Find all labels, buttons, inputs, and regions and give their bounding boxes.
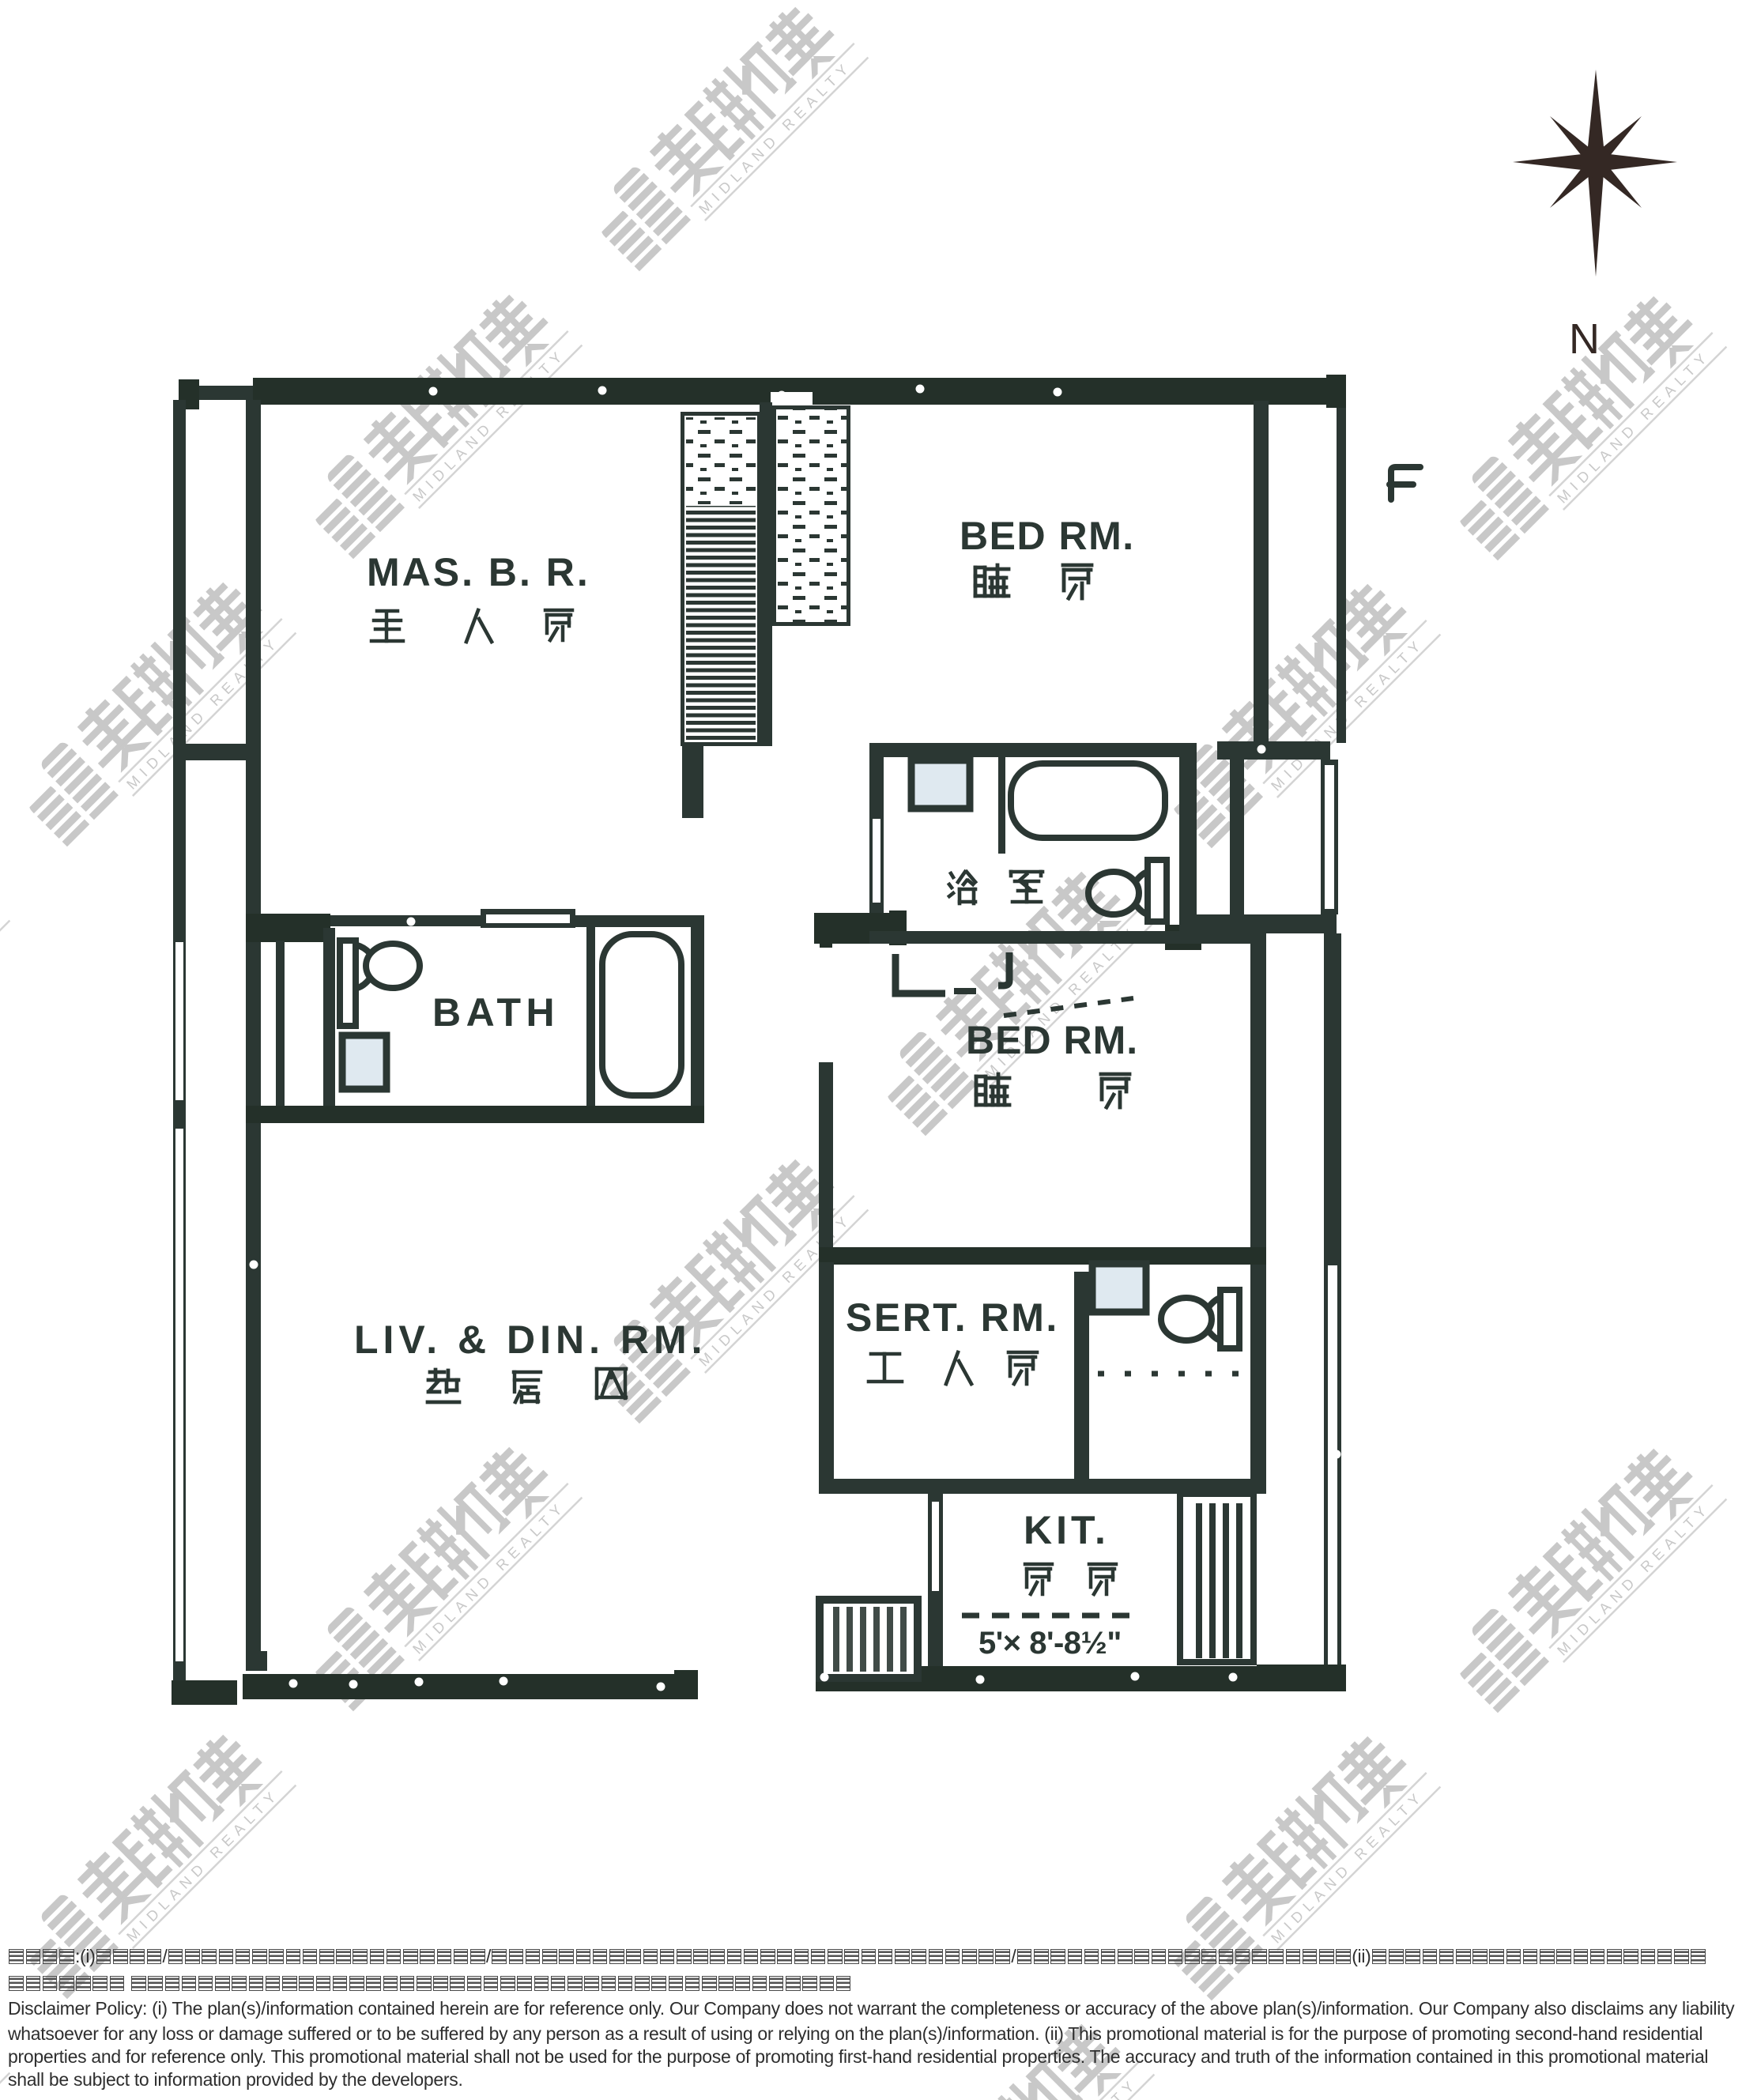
svg-text:BED RM.: BED RM. — [960, 514, 1135, 558]
svg-text:LIV. & DIN. RM.: LIV. & DIN. RM. — [354, 1318, 707, 1362]
svg-text:N: N — [1569, 315, 1600, 363]
svg-text:MAS. B. R.: MAS. B. R. — [367, 550, 590, 594]
svg-text:KIT.: KIT. — [1024, 1508, 1110, 1552]
svg-text:BATH: BATH — [432, 990, 560, 1035]
svg-text:SERT. RM.: SERT. RM. — [846, 1295, 1059, 1340]
svg-text:BED RM.: BED RM. — [966, 1018, 1138, 1062]
svg-text:5'× 8'-8½": 5'× 8'-8½" — [978, 1626, 1122, 1661]
